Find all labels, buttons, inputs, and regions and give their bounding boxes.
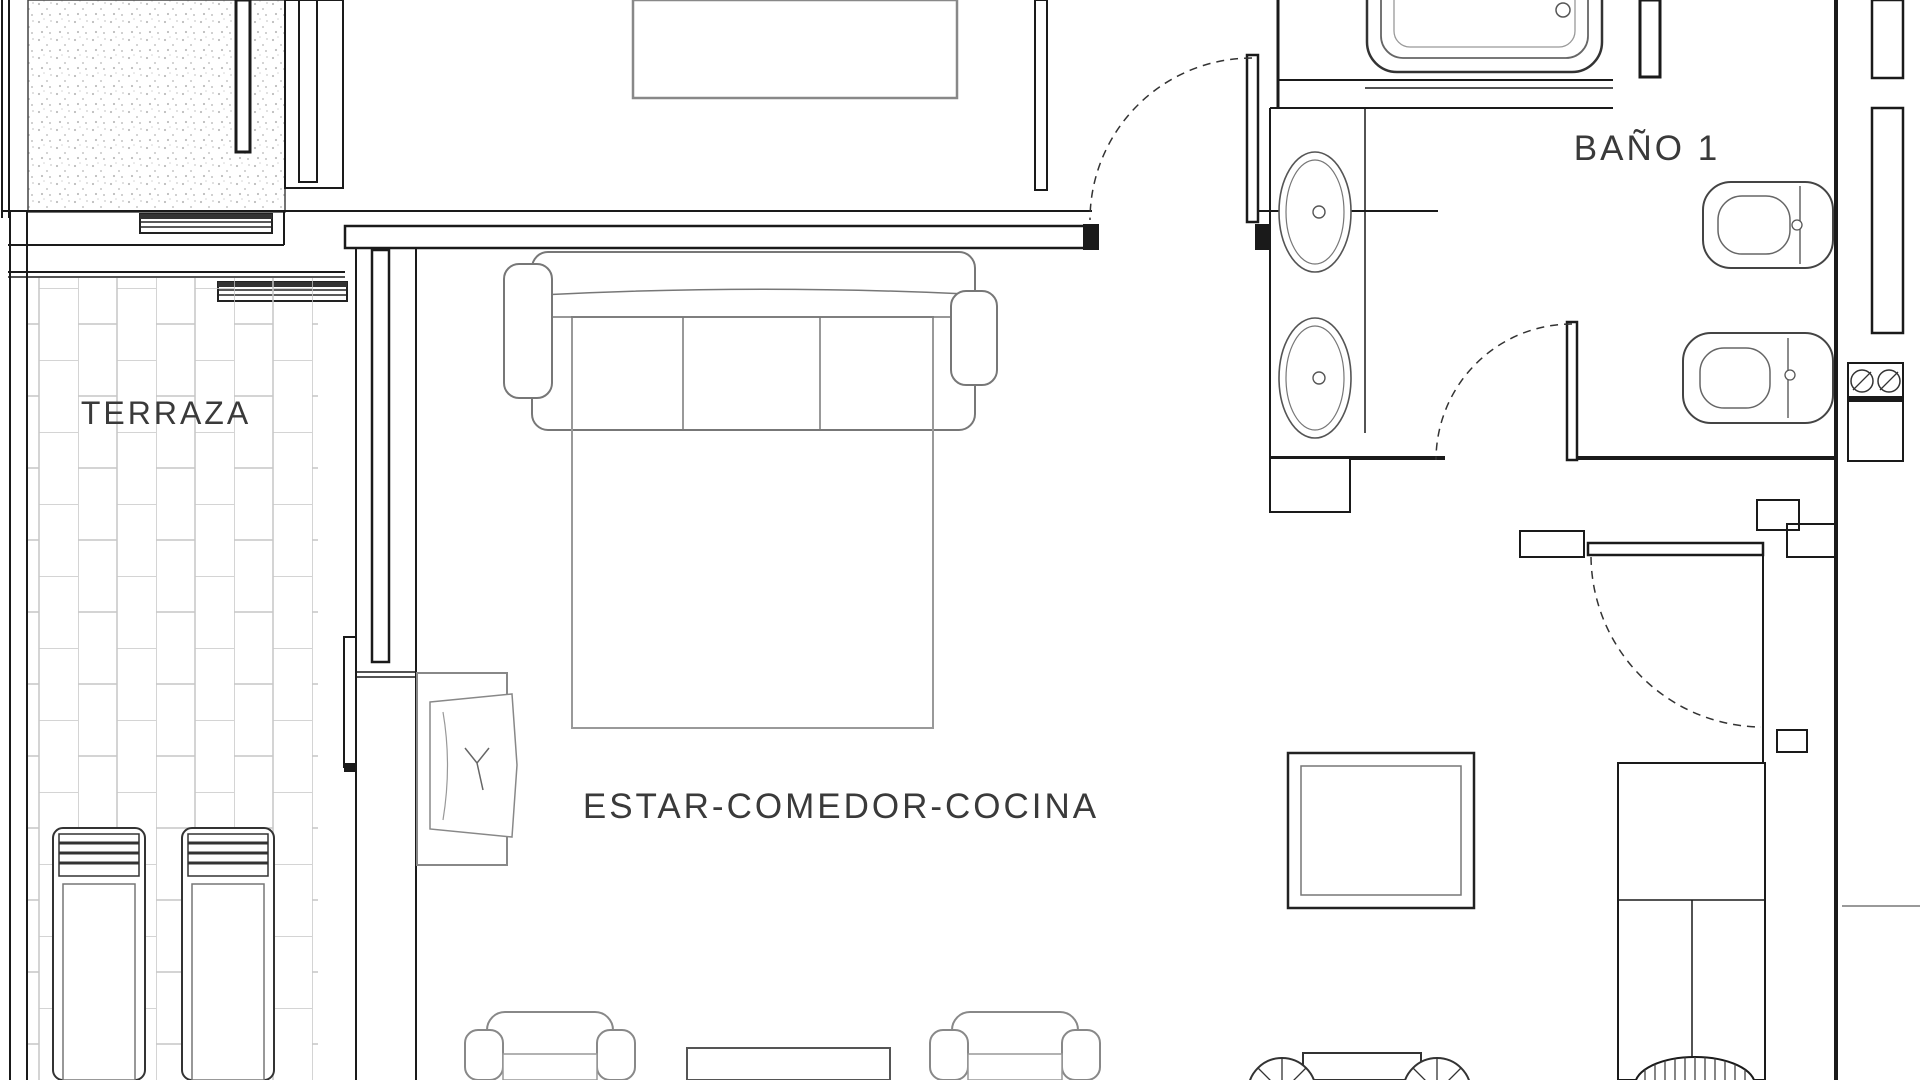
washbasin-icon xyxy=(1279,318,1351,438)
kitchen xyxy=(1248,753,1765,1080)
hob-washer-icon xyxy=(1848,363,1903,461)
toilet-icon xyxy=(1703,182,1833,268)
floor-plan: TERRAZA xyxy=(0,0,1920,1080)
sofa-armrest xyxy=(951,291,997,385)
wall-end-post xyxy=(1255,224,1271,250)
door-leaf xyxy=(1567,322,1577,460)
tv-unit xyxy=(417,673,517,865)
door-leaf xyxy=(1247,55,1258,222)
coffee-table xyxy=(687,1048,890,1080)
wall-post xyxy=(236,0,250,152)
bathtub-icon xyxy=(1367,0,1602,72)
sofa-armrest xyxy=(504,264,552,398)
wall-end-post xyxy=(1083,224,1099,250)
window xyxy=(285,0,343,188)
living-room: ESTAR-COMEDOR-COCINA xyxy=(417,252,1100,1080)
armchair xyxy=(930,1012,1100,1080)
bathroom: BAÑO 1 xyxy=(1270,0,1833,512)
vanity xyxy=(1270,108,1365,512)
terrace-label: TERRAZA xyxy=(81,395,251,431)
bathroom-door xyxy=(1436,322,1577,460)
door-swing xyxy=(1591,557,1761,727)
bedroom-door xyxy=(1090,55,1258,222)
dining-table xyxy=(1288,753,1474,908)
door-swing xyxy=(1436,324,1572,460)
bidet-icon xyxy=(1683,333,1833,423)
floor-plan-canvas: TERRAZA xyxy=(0,0,1920,1080)
vent-grille xyxy=(140,214,272,233)
door-leaf xyxy=(1588,543,1763,555)
sofa xyxy=(504,252,997,728)
washbasin-icon xyxy=(1279,152,1351,272)
chair-icon xyxy=(1248,1053,1471,1080)
armchair xyxy=(465,1012,635,1080)
sliding-door xyxy=(344,248,416,1080)
bath1-label: BAÑO 1 xyxy=(1574,129,1720,168)
terrace: TERRAZA xyxy=(28,278,318,1080)
sun-lounger xyxy=(182,828,274,1080)
sun-lounger xyxy=(53,828,145,1080)
door-swing xyxy=(1090,58,1252,220)
bedroom xyxy=(633,0,1258,222)
living-label: ESTAR-COMEDOR-COCINA xyxy=(583,787,1099,826)
bedroom-table xyxy=(633,0,957,98)
